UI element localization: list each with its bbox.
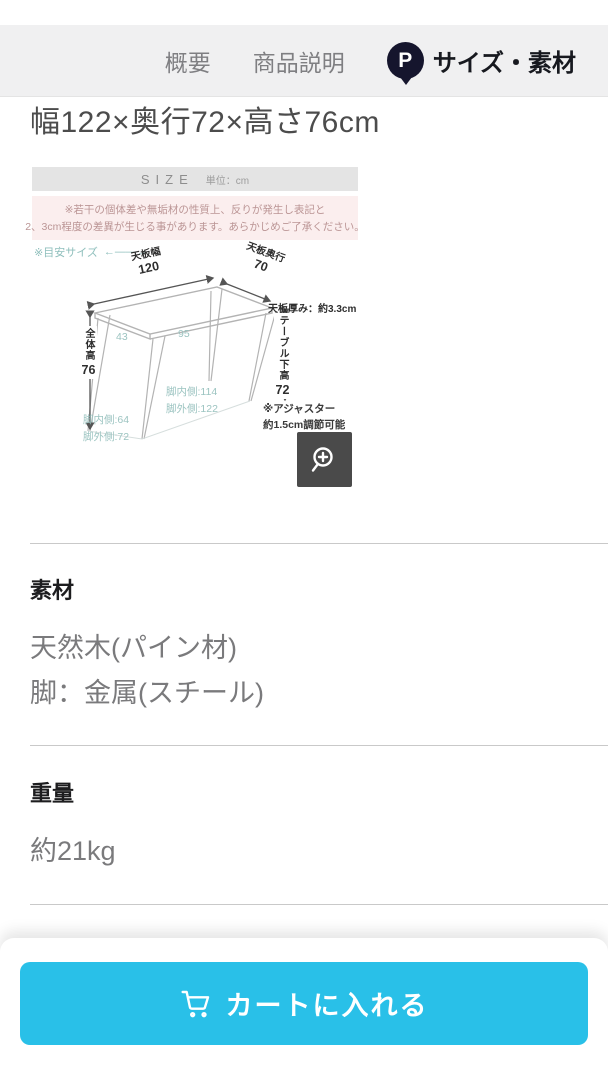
label-under-table-height: テーブル下高 72 (274, 313, 291, 399)
label-leg-outer-width: 脚外側:122 (166, 401, 218, 418)
label-leg-inner-depth: 脚内側:64 (83, 412, 129, 429)
add-to-cart-label: カートに入れる (226, 984, 429, 1023)
label-overall-height: 全体高 76 (80, 326, 97, 379)
divider-above-weight (30, 745, 608, 746)
top-white-strip (0, 0, 608, 25)
tolerance-notice-line1: ※若干の個体差や無垢材の性質上、反りが発生し表記と (65, 202, 326, 217)
size-header-unit: 単位：cm (206, 172, 249, 187)
label-leg-inner-width: 脚内側:114 (166, 384, 218, 401)
tab-size-material[interactable]: P サイズ・素材 (387, 42, 576, 79)
size-diagram-image: SIZE 単位：cm ※若干の個体差や無垢材の性質上、反りが発生し表記と 2、3… (30, 163, 360, 503)
label-leg-width-notes: 脚内側:114 脚外側:122 (166, 384, 218, 418)
label-adjuster-line2: 約1.5cm調節可能 (263, 417, 345, 433)
label-overall-height-name: 全体高 (81, 328, 96, 361)
label-overall-height-value: 76 (82, 363, 96, 377)
approx-size-note-text: ※目安サイズ (34, 244, 98, 260)
magnifier-plus-icon (308, 443, 342, 477)
material-line-2: 脚：金属(スチール) (30, 671, 264, 710)
tolerance-notice-line2: 2、3cm程度の差異が生じる事があります。あらかじめご了承ください。 (25, 219, 365, 234)
add-to-cart-button[interactable]: カートに入れる (20, 962, 588, 1045)
weight-value: 約21kg (30, 829, 116, 868)
size-diagram-header: SIZE 単位：cm (32, 167, 358, 191)
tolerance-notice: ※若干の個体差や無垢材の性質上、反りが発生し表記と 2、3cm程度の差異が生じる… (32, 196, 358, 240)
point-badge-icon: P (387, 42, 424, 79)
label-leg-gap-center: 95 (178, 326, 190, 343)
tab-overview[interactable]: 概要 (165, 44, 211, 78)
tab-size-material-label: サイズ・素材 (433, 43, 576, 78)
label-leg-outer-depth: 脚外側:72 (83, 429, 129, 446)
size-header-title: SIZE (141, 172, 194, 187)
label-leg-gap-side: 43 (116, 329, 128, 346)
divider-above-material (30, 543, 608, 544)
label-under-table-height-value: 72 (276, 383, 290, 397)
label-top-depth: 天板奥行 70 (221, 234, 305, 286)
image-zoom-button[interactable] (297, 432, 352, 487)
label-adjuster-line1: ※アジャスター (263, 401, 345, 417)
label-leg-depth-notes: 脚内側:64 脚外側:72 (83, 412, 129, 446)
label-under-table-height-name: テーブル下高 (275, 315, 290, 381)
tab-product-description[interactable]: 商品説明 (253, 44, 345, 78)
divider-below-weight (30, 904, 608, 905)
product-dimensions-text: 幅122×奥行72×高さ76cm (30, 97, 380, 141)
material-heading: 素材 (30, 573, 74, 605)
cart-icon (180, 988, 212, 1020)
section-tab-bar: 概要 商品説明 P サイズ・素材 (0, 25, 608, 97)
weight-heading: 重量 (30, 776, 74, 808)
bottom-action-bar: カートに入れる (0, 938, 608, 1080)
material-line-1: 天然木(パイン材) (30, 626, 237, 665)
label-adjuster: ※アジャスター 約1.5cm調節可能 (263, 401, 345, 433)
point-badge-letter: P (398, 50, 412, 71)
